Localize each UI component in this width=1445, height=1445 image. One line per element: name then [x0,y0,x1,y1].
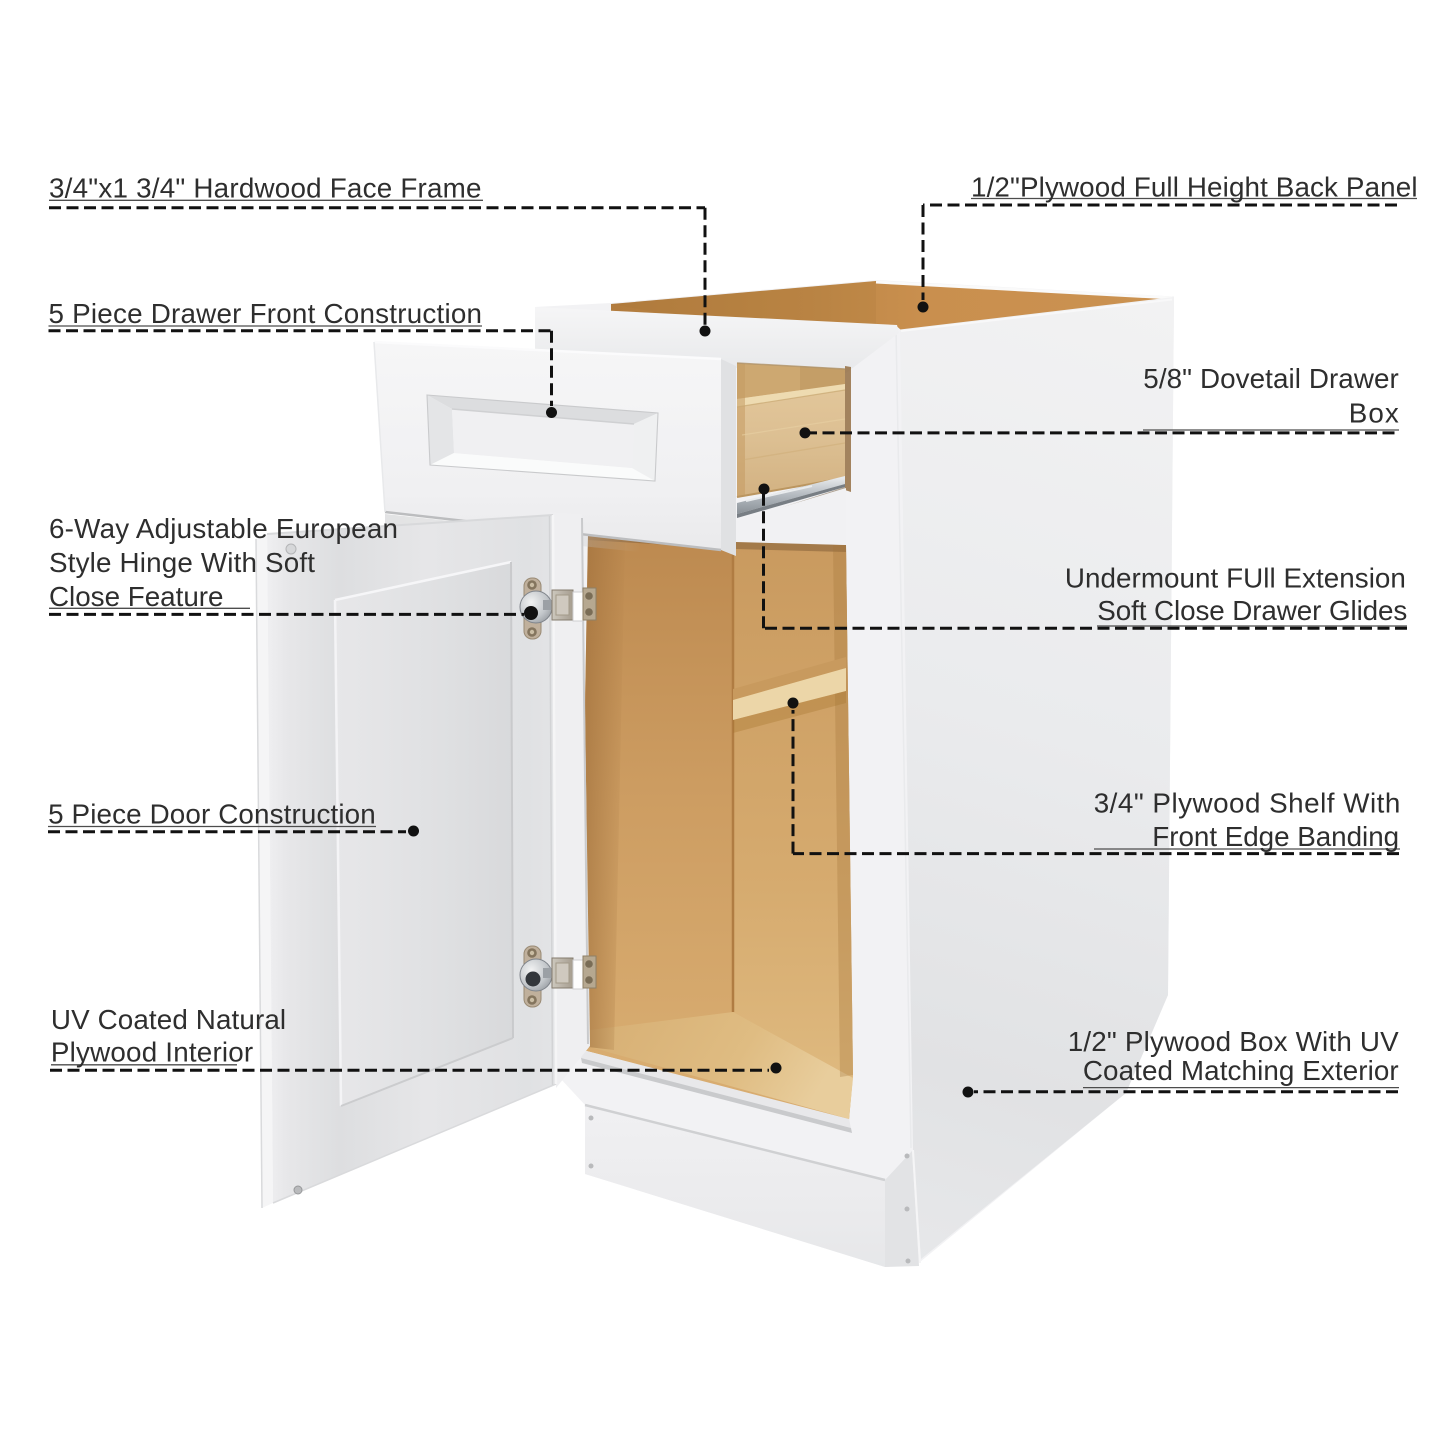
svg-text:5 Piece Door Construction: 5 Piece Door Construction [48,799,376,830]
svg-text:6-Way Adjustable European: 6-Way Adjustable European [49,513,398,544]
svg-text:Undermount FUll Extension: Undermount FUll Extension [1065,563,1406,594]
svg-text:Plywood Interior: Plywood Interior [51,1037,253,1068]
svg-text:5/8" Dovetail Drawer: 5/8" Dovetail Drawer [1143,363,1399,394]
svg-text:Coated Matching Exterior: Coated Matching Exterior [1083,1055,1399,1086]
svg-text:Close Feature: Close Feature [49,581,224,612]
svg-text:Front Edge Banding: Front Edge Banding [1152,821,1399,852]
svg-text:3/4"x1 3/4" Hardwood Face Fram: 3/4"x1 3/4" Hardwood Face Frame [49,173,482,204]
svg-text:UV Coated Natural: UV Coated Natural [51,1004,286,1035]
svg-text:Style Hinge With Soft: Style Hinge With Soft [49,547,315,578]
svg-text:1/2"Plywood Full Height Back P: 1/2"Plywood Full Height Back Panel [971,171,1418,202]
svg-text:5 Piece Drawer Front Construct: 5 Piece Drawer Front Construction [49,298,483,329]
svg-text:Box: Box [1349,397,1399,428]
svg-text:Soft Close Drawer Glides: Soft Close Drawer Glides [1097,595,1407,626]
svg-text:3/4" Plywood Shelf With: 3/4" Plywood Shelf With [1094,787,1401,818]
svg-text:1/2" Plywood Box With UV: 1/2" Plywood Box With UV [1068,1026,1399,1057]
